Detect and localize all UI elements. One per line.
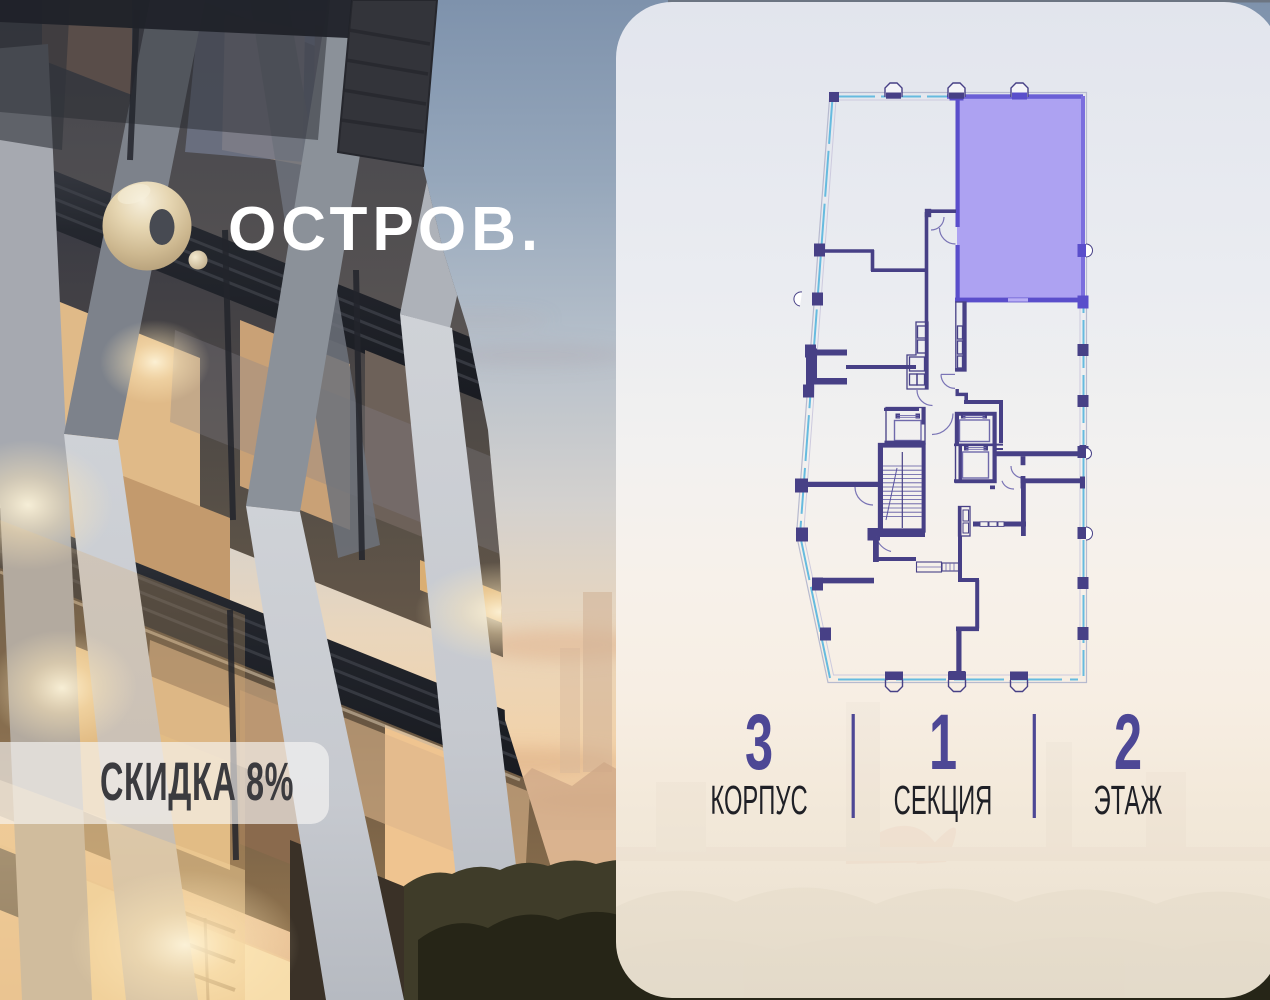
- svg-text:КОРПУС: КОРПУС: [710, 779, 807, 824]
- svg-text:ЭТАЖ: ЭТАЖ: [1094, 779, 1163, 824]
- svg-text:2: 2: [1114, 699, 1142, 787]
- svg-text:1: 1: [929, 699, 957, 787]
- svg-text:СЕКЦИЯ: СЕКЦИЯ: [894, 779, 993, 824]
- svg-text:ОСТРОВ.: ОСТРОВ.: [228, 195, 543, 264]
- svg-text:3: 3: [745, 699, 773, 787]
